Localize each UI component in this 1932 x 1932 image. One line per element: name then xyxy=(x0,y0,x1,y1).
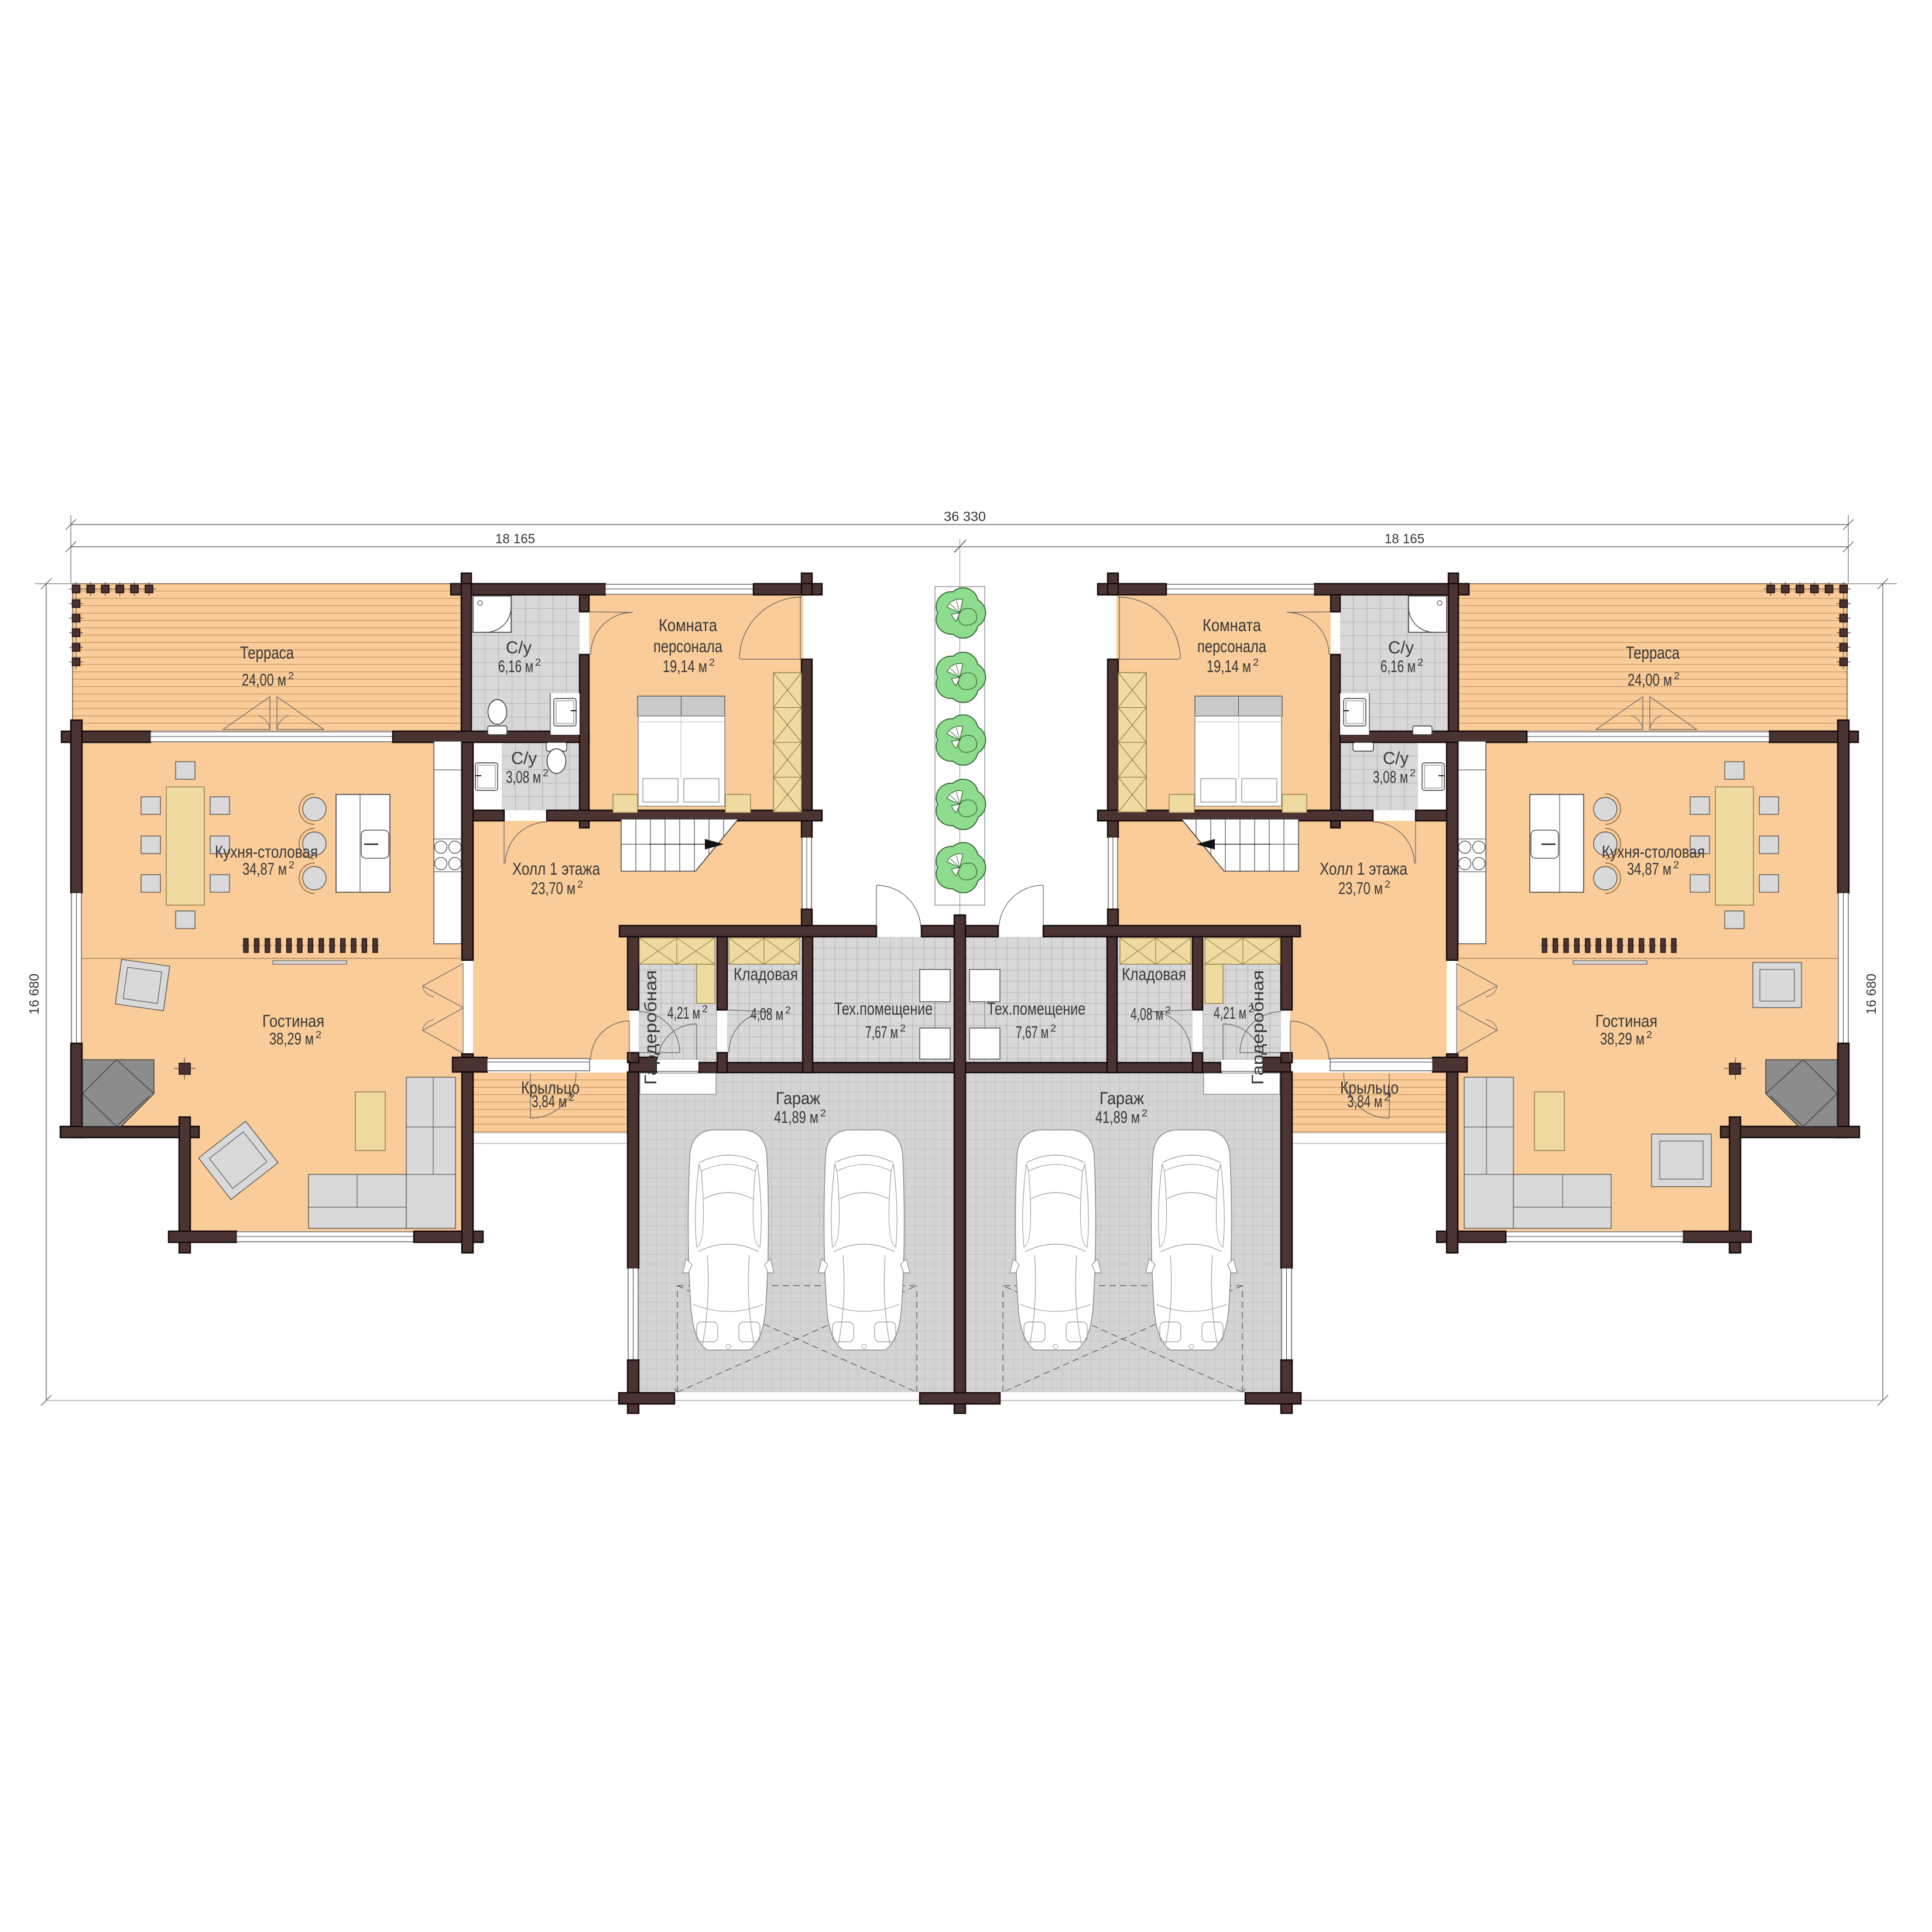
svg-text:4,08 м: 4,08 м xyxy=(751,1005,783,1024)
svg-text:Тех.помещение: Тех.помещение xyxy=(834,999,933,1019)
svg-text:3,84 м: 3,84 м xyxy=(1347,1092,1382,1111)
svg-text:24,00 м: 24,00 м xyxy=(1628,671,1672,690)
svg-text:34,87 м: 34,87 м xyxy=(1627,860,1671,879)
svg-text:36 330: 36 330 xyxy=(944,509,986,524)
svg-text:2: 2 xyxy=(316,1029,321,1040)
svg-text:23,70 м: 23,70 м xyxy=(1338,879,1383,898)
svg-text:18 165: 18 165 xyxy=(495,531,535,546)
svg-text:2: 2 xyxy=(1674,670,1680,681)
svg-text:2: 2 xyxy=(1410,767,1416,779)
svg-text:2: 2 xyxy=(1248,1003,1254,1015)
svg-text:Комната: Комната xyxy=(659,616,717,635)
svg-text:2: 2 xyxy=(568,1091,574,1103)
svg-text:Кладовая: Кладовая xyxy=(1122,965,1186,984)
svg-text:4,21 м: 4,21 м xyxy=(1214,1004,1246,1023)
svg-text:3,08 м: 3,08 м xyxy=(1373,768,1408,787)
svg-text:2: 2 xyxy=(820,1107,826,1119)
svg-text:Кухня-столовая: Кухня-столовая xyxy=(215,842,318,862)
svg-text:2: 2 xyxy=(543,767,549,779)
svg-text:С/у: С/у xyxy=(511,749,537,768)
svg-text:7,67 м: 7,67 м xyxy=(865,1023,898,1042)
svg-text:Терраса: Терраса xyxy=(240,643,294,663)
svg-text:18 165: 18 165 xyxy=(1385,531,1424,546)
svg-text:Гардеробная: Гардеробная xyxy=(642,970,660,1085)
svg-text:2: 2 xyxy=(1142,1107,1147,1119)
svg-text:6,16 м: 6,16 м xyxy=(498,657,533,676)
svg-text:Гардеробная: Гардеробная xyxy=(1249,970,1268,1085)
svg-text:2: 2 xyxy=(702,1003,708,1015)
svg-text:2: 2 xyxy=(1673,859,1679,871)
svg-text:персонала: персонала xyxy=(653,637,722,656)
svg-text:7,67 м: 7,67 м xyxy=(1016,1023,1049,1042)
svg-text:4,08 м: 4,08 м xyxy=(1131,1005,1163,1024)
svg-text:41,89 м: 41,89 м xyxy=(1095,1108,1140,1127)
svg-text:2: 2 xyxy=(289,859,294,871)
svg-text:2: 2 xyxy=(1165,1004,1171,1016)
svg-text:2: 2 xyxy=(577,878,583,890)
svg-text:2: 2 xyxy=(1253,656,1259,668)
svg-text:2: 2 xyxy=(785,1004,791,1016)
svg-text:6,16 м: 6,16 м xyxy=(1381,657,1416,676)
svg-text:2: 2 xyxy=(1385,878,1390,890)
svg-text:2: 2 xyxy=(1384,1091,1390,1103)
svg-text:2: 2 xyxy=(1646,1029,1652,1040)
svg-text:2: 2 xyxy=(900,1022,906,1034)
svg-text:Тех.помещение: Тех.помещение xyxy=(987,999,1085,1019)
svg-text:2: 2 xyxy=(1050,1022,1056,1034)
svg-text:С/у: С/у xyxy=(1388,638,1414,657)
svg-text:персонала: персонала xyxy=(1197,637,1266,656)
svg-text:19,14 м: 19,14 м xyxy=(663,657,707,676)
svg-text:16 680: 16 680 xyxy=(26,974,42,1015)
svg-text:Холл 1 этажа: Холл 1 этажа xyxy=(512,859,600,879)
svg-text:Гараж: Гараж xyxy=(776,1089,820,1108)
svg-text:Гараж: Гараж xyxy=(1099,1089,1144,1108)
svg-text:38,29 м: 38,29 м xyxy=(1600,1030,1645,1049)
svg-text:38,29 м: 38,29 м xyxy=(269,1030,314,1049)
svg-text:34,87 м: 34,87 м xyxy=(242,860,287,879)
svg-text:Кладовая: Кладовая xyxy=(734,965,798,984)
svg-text:3,08 м: 3,08 м xyxy=(506,768,541,787)
svg-text:Холл 1 этажа: Холл 1 этажа xyxy=(1320,859,1407,879)
svg-text:С/у: С/у xyxy=(1383,749,1409,768)
svg-text:4,21 м: 4,21 м xyxy=(667,1004,700,1023)
svg-text:2: 2 xyxy=(288,670,294,681)
svg-text:23,70 м: 23,70 м xyxy=(531,879,576,898)
svg-text:3,84 м: 3,84 м xyxy=(532,1092,567,1111)
svg-text:Комната: Комната xyxy=(1203,616,1261,635)
svg-text:2: 2 xyxy=(535,656,541,668)
svg-text:Кухня-столовая: Кухня-столовая xyxy=(1602,842,1705,862)
svg-text:19,14 м: 19,14 м xyxy=(1207,657,1251,676)
svg-text:2: 2 xyxy=(709,656,715,668)
svg-text:Терраса: Терраса xyxy=(1626,643,1680,663)
svg-text:41,89 м: 41,89 м xyxy=(774,1108,818,1127)
svg-text:24,00 м: 24,00 м xyxy=(242,671,286,690)
svg-text:2: 2 xyxy=(1417,656,1423,668)
svg-text:С/у: С/у xyxy=(506,638,532,657)
svg-text:16 680: 16 680 xyxy=(1864,974,1879,1015)
